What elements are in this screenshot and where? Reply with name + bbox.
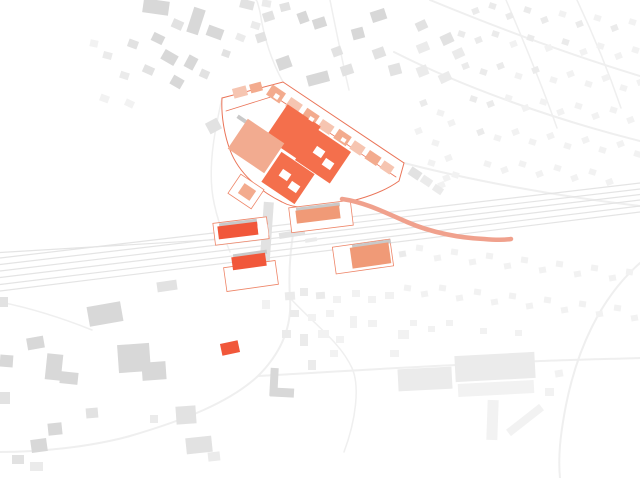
context-buildings (0, 0, 640, 471)
map-canvas (0, 0, 640, 478)
site-plan-map (0, 0, 640, 478)
route-highlight-line (342, 199, 511, 240)
